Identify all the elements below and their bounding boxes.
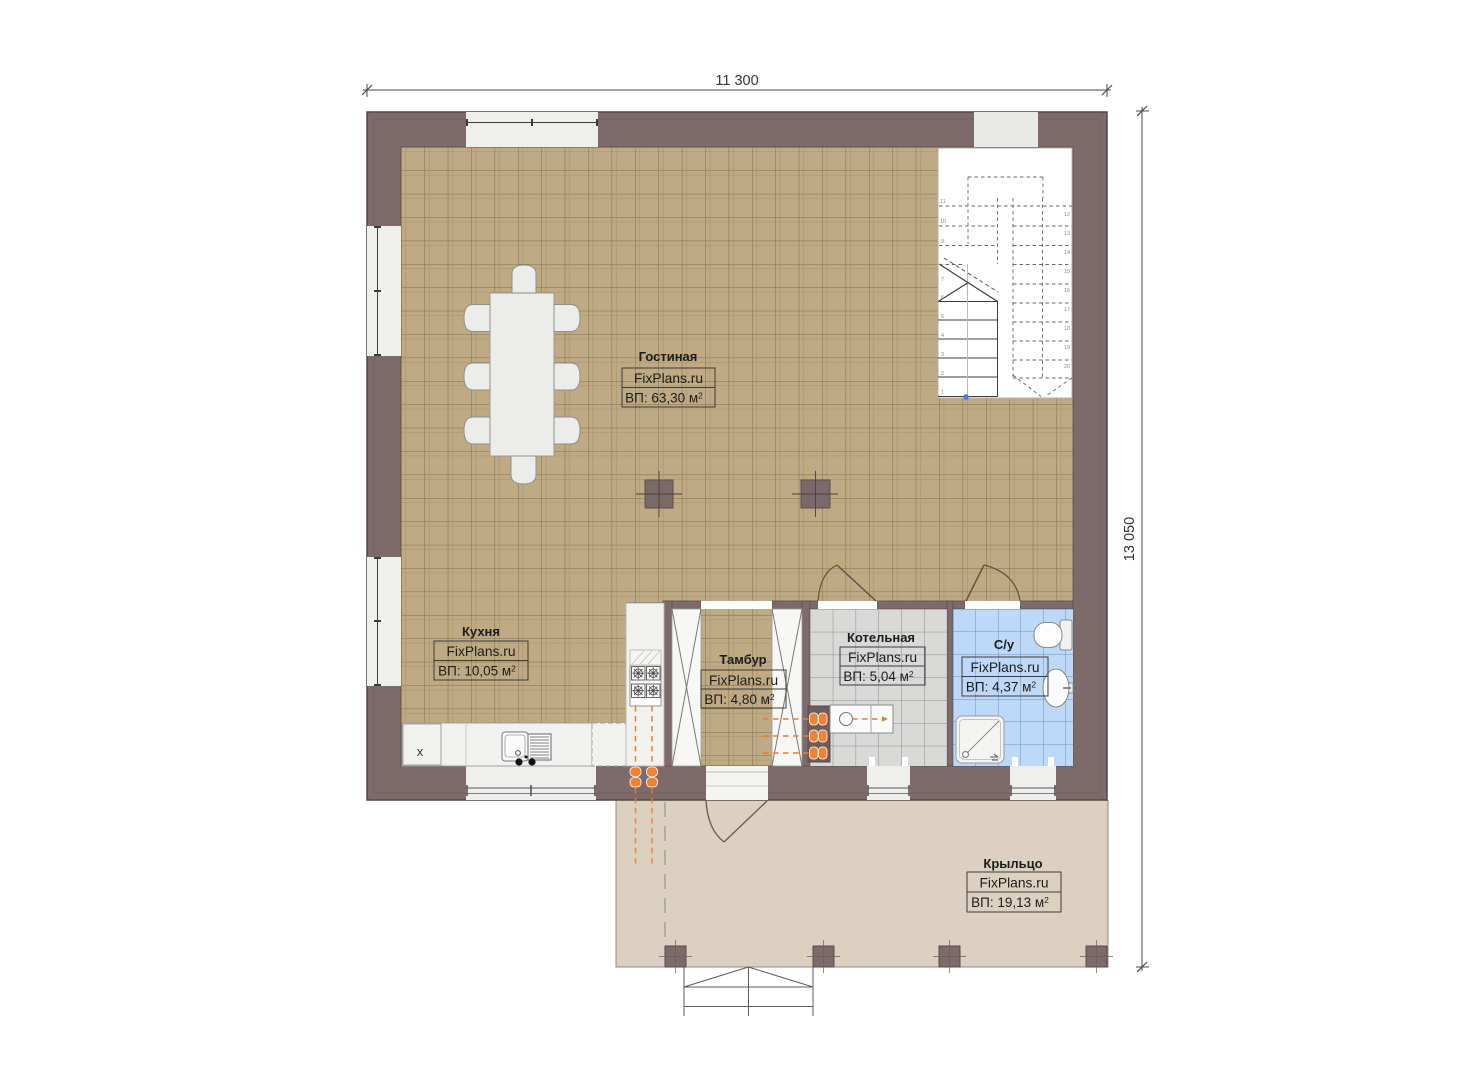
- svg-text:ВП: 10,05 м2: ВП: 10,05 м2: [438, 664, 516, 679]
- svg-text:10: 10: [940, 219, 946, 225]
- svg-text:Тамбур: Тамбур: [719, 652, 766, 667]
- svg-text:11: 11: [940, 199, 946, 205]
- svg-text:11 300: 11 300: [715, 73, 758, 89]
- svg-text:13: 13: [1064, 231, 1070, 237]
- svg-text:С/у: С/у: [994, 637, 1015, 652]
- svg-text:FixPlans.ru: FixPlans.ru: [848, 650, 917, 665]
- svg-text:ВП: 4,37 м2: ВП: 4,37 м2: [966, 680, 1037, 695]
- svg-text:13 050: 13 050: [1122, 517, 1138, 561]
- svg-text:16: 16: [1064, 288, 1070, 294]
- svg-text:2: 2: [941, 371, 944, 377]
- svg-text:ВП: 5,04 м2: ВП: 5,04 м2: [843, 669, 914, 684]
- svg-text:FixPlans.ru: FixPlans.ru: [446, 644, 515, 659]
- svg-text:FixPlans.ru: FixPlans.ru: [979, 876, 1048, 891]
- svg-text:19: 19: [1064, 345, 1070, 351]
- svg-text:FixPlans.ru: FixPlans.ru: [634, 371, 703, 386]
- svg-text:4: 4: [941, 333, 944, 339]
- svg-text:ВП: 63,30 м2: ВП: 63,30 м2: [625, 391, 703, 406]
- svg-text:17: 17: [1064, 307, 1070, 313]
- svg-text:Гостиная: Гостиная: [639, 349, 698, 364]
- svg-text:1: 1: [941, 390, 944, 396]
- svg-text:15: 15: [1064, 269, 1070, 275]
- svg-text:Кухня: Кухня: [462, 624, 500, 639]
- svg-text:12: 12: [1064, 212, 1070, 218]
- svg-text:9: 9: [941, 239, 944, 245]
- svg-text:5: 5: [941, 314, 944, 320]
- svg-text:ВП: 19,13 м2: ВП: 19,13 м2: [971, 895, 1049, 910]
- svg-text:FixPlans.ru: FixPlans.ru: [709, 673, 778, 688]
- svg-text:Котельная: Котельная: [847, 630, 915, 645]
- svg-text:3: 3: [941, 352, 944, 358]
- svg-text:Крыльцо: Крыльцо: [983, 856, 1042, 871]
- svg-text:18: 18: [1064, 326, 1070, 332]
- svg-text:14: 14: [1064, 250, 1070, 256]
- svg-text:7: 7: [941, 277, 944, 283]
- svg-text:x: x: [417, 744, 424, 759]
- svg-text:ВП: 4,80 м2: ВП: 4,80 м2: [704, 692, 775, 707]
- svg-text:20: 20: [1064, 364, 1070, 370]
- svg-text:FixPlans.ru: FixPlans.ru: [970, 660, 1039, 675]
- svg-text:6: 6: [941, 295, 944, 301]
